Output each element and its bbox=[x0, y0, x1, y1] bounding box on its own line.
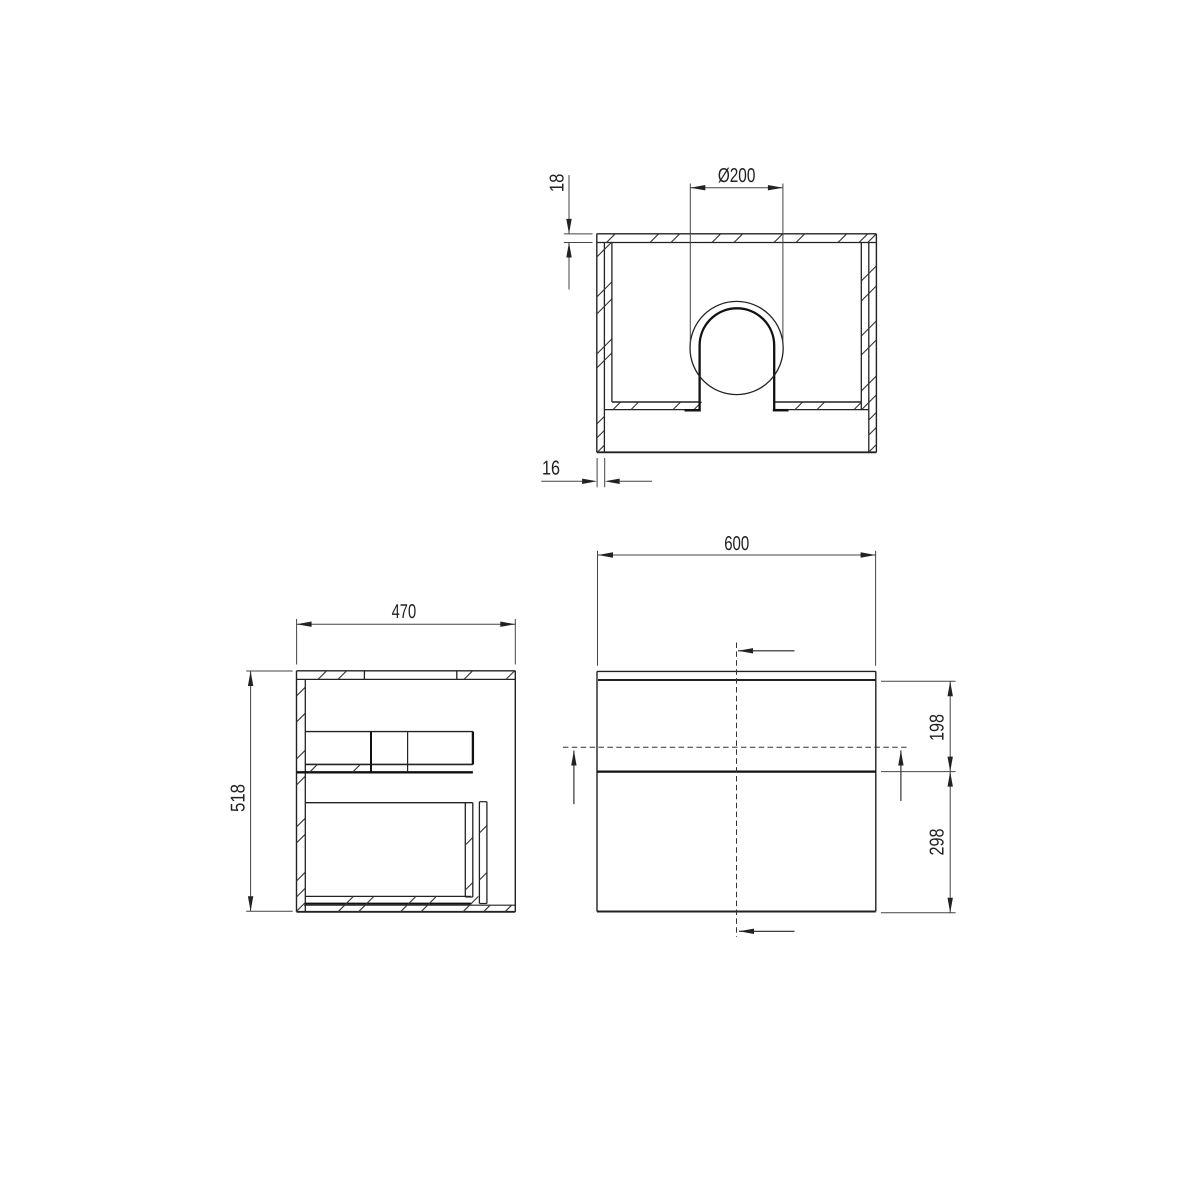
svg-text:518: 518 bbox=[228, 784, 250, 812]
svg-text:600: 600 bbox=[724, 533, 749, 555]
svg-text:16: 16 bbox=[542, 458, 560, 480]
svg-text:198: 198 bbox=[927, 714, 949, 741]
svg-text:18: 18 bbox=[547, 174, 569, 193]
svg-text:298: 298 bbox=[927, 829, 949, 856]
svg-text:470: 470 bbox=[392, 601, 417, 623]
svg-text:Ø200: Ø200 bbox=[718, 165, 756, 187]
